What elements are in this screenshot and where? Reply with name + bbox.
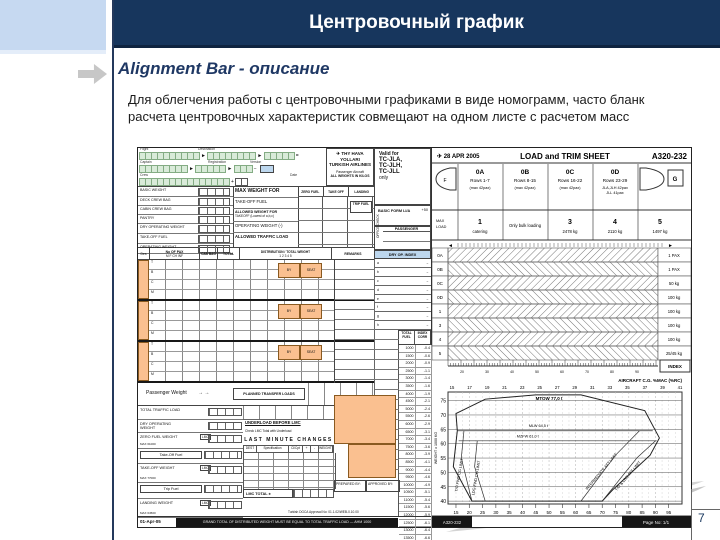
plus-sign: +: [231, 179, 234, 185]
approved-by-box: APPROVED BY:: [366, 480, 400, 492]
svg-text:90: 90: [653, 510, 659, 515]
svg-text:MZFW 61,0 t: MZFW 61,0 t: [517, 434, 540, 438]
limit-columns: ZERO FUEL TAKE OFF LANDING TRIP FUEL: [298, 187, 374, 247]
svg-text:50 kg: 50 kg: [669, 281, 680, 286]
svg-text:LOAD: LOAD: [436, 225, 447, 229]
pax-cab-bag: CAB BAG: [200, 248, 218, 259]
svg-text:40: 40: [520, 510, 526, 515]
svg-text:41: 41: [678, 385, 683, 390]
svg-text:0D: 0D: [611, 169, 620, 176]
svg-text:MTOW 77,0 t: MTOW 77,0 t: [536, 396, 563, 401]
weight-row-label: BASIC WEIGHT: [140, 188, 166, 192]
flight-fields-row3: +: [140, 178, 248, 186]
totals-rows: TOTAL TRAFFIC LOADDRY OPERATING WEIGHTZE…: [138, 406, 243, 511]
svg-text:JLL 41pax: JLL 41pax: [606, 191, 623, 195]
field-label-date: Date: [290, 174, 297, 177]
svg-text:5: 5: [658, 219, 662, 226]
title-bar: Центровочный график: [113, 0, 720, 48]
basic-form-box: BASIC FORM LI/A +50: [374, 205, 431, 226]
destination-cell: [138, 260, 149, 299]
corner-decoration: [0, 0, 106, 54]
svg-text:25: 25: [537, 385, 542, 390]
alignment-bar: [448, 304, 658, 318]
lmc-total-label: LMC TOTAL ±: [243, 489, 293, 498]
svg-text:95: 95: [666, 510, 672, 515]
svg-text:100 kg: 100 kg: [668, 337, 681, 342]
operating-weight-row: OPERATING WEIGHT (-): [233, 222, 298, 233]
svg-text:35: 35: [507, 510, 513, 515]
underload-label: UNDERLOAD BEFORE LMC: [245, 420, 301, 425]
svg-text:70: 70: [600, 510, 606, 515]
svg-text:JLA,JLH 42pax: JLA,JLH 42pax: [602, 186, 628, 190]
svg-text:27: 27: [555, 385, 560, 390]
svg-text:3: 3: [568, 219, 572, 226]
allowed-traffic-row: ALLOWED TRAFFIC LOAD: [233, 233, 298, 244]
svg-text:A320-232: A320-232: [443, 520, 462, 525]
arrow-icon: ►: [189, 166, 194, 172]
svg-text:G: G: [673, 177, 678, 183]
svg-text:31: 31: [590, 385, 595, 390]
svg-text:80: 80: [626, 510, 632, 515]
alignment-bar: [448, 346, 658, 360]
airline-name-1: THY HAVA YOLLARI: [340, 151, 364, 162]
svg-text:Rows 16-22: Rows 16-22: [558, 178, 583, 183]
svg-text:29: 29: [572, 385, 577, 390]
validity-box: Valid for TC-JLA, TC-JLH, TC-JLL only: [374, 148, 431, 205]
svg-text:catering: catering: [473, 229, 489, 234]
svg-text:100 kg: 100 kg: [668, 295, 681, 300]
svg-text:50: 50: [535, 370, 539, 374]
field-label-registration: Registration: [208, 161, 226, 164]
svg-text:0A: 0A: [476, 169, 485, 176]
col-landing: LANDING: [349, 187, 374, 196]
orange-block-1: [334, 395, 396, 444]
svg-text:(max 42pax): (max 42pax): [559, 186, 581, 190]
svg-text:40: 40: [510, 370, 514, 374]
svg-text:1 PAX: 1 PAX: [668, 253, 680, 258]
svg-text:70: 70: [440, 413, 446, 419]
svg-text:Rows 8-15: Rows 8-15: [514, 178, 536, 183]
basic-form-value: +50: [422, 208, 428, 212]
corner-line-vertical: [691, 489, 692, 540]
takeoff-fuel-row: TAKE-OFF FUEL: [233, 198, 298, 209]
destination-cell: [138, 342, 149, 381]
corner-line-horizontal: [691, 509, 720, 510]
bullet-arrow-icon: [78, 64, 107, 84]
field-label-crew: Crew: [140, 174, 148, 177]
col-take-off: TAKE OFF: [324, 187, 350, 196]
fuel-rows: 1000-0.41500-0.62000-0.92500-1.13000-1.4…: [398, 345, 432, 517]
svg-text:20: 20: [460, 370, 464, 374]
svg-text:50: 50: [440, 470, 446, 476]
svg-text:21: 21: [502, 385, 507, 390]
svg-text:37: 37: [643, 385, 648, 390]
body-line-2: расчета центровочных характеристик совме…: [128, 109, 629, 124]
slide-title: Центровочный график: [113, 0, 720, 45]
svg-text:60: 60: [573, 510, 579, 515]
col-zero-fuel: ZERO FUEL: [298, 187, 324, 196]
svg-text:33: 33: [608, 385, 613, 390]
svg-text:90: 90: [635, 370, 639, 374]
svg-text:0D: 0D: [437, 295, 444, 300]
svg-text:60: 60: [440, 442, 446, 448]
svg-text:39: 39: [660, 385, 665, 390]
alignment-bar: [448, 290, 658, 304]
footer-strip-text: GRAND TOTAL OF DISTRIBUTED WEIGHT MUST B…: [176, 518, 398, 527]
svg-text:0C: 0C: [566, 169, 575, 176]
pax-total: TOTAL: [218, 248, 240, 259]
svg-text:15: 15: [450, 385, 455, 390]
svg-text:23: 23: [520, 385, 525, 390]
svg-text:(max 42pax): (max 42pax): [469, 186, 491, 190]
index-transfer-rows: a→b→c→d→e→f→g→h→: [374, 259, 431, 330]
arrow-icon: ►: [257, 153, 262, 159]
svg-text:70: 70: [585, 370, 589, 374]
left-footer: 01-Apr-05 GRAND TOTAL OF DISTRIBUTED WEI…: [138, 516, 431, 527]
section-heading: Alignment Bar - описание: [118, 59, 329, 79]
svg-text:0B: 0B: [521, 169, 530, 176]
svg-text:LDG FWD CG LIMIT: LDG FWD CG LIMIT: [471, 460, 481, 496]
svg-text:2110 kg: 2110 kg: [608, 229, 623, 234]
office-check-box: OFFICE CHECK PASSENGER: [374, 226, 431, 250]
svg-text:AIRCRAFT C.G. %MAC (%RC): AIRCRAFT C.G. %MAC (%RC): [618, 378, 682, 383]
plane-icon: ✈: [336, 151, 340, 156]
svg-text:A320-232: A320-232: [652, 152, 688, 161]
alignment-bar: [448, 276, 658, 290]
weight-row-label: PANTRY: [140, 216, 154, 220]
pax-des: Des: [138, 248, 150, 259]
svg-text:0A: 0A: [437, 253, 443, 258]
svg-text:F: F: [443, 178, 446, 184]
transfer-loads-box: PLANNED TRANSFER LOADS: [233, 388, 305, 400]
left-border-line: [112, 0, 114, 540]
grid-strip: [243, 406, 334, 420]
svg-text:Only bulk loading: Only bulk loading: [509, 223, 542, 228]
svg-text:Page No: 1/1: Page No: 1/1: [643, 520, 670, 525]
svg-text:40: 40: [440, 499, 446, 505]
max-weight-block: MAX WEIGHT FOR TAKE-OFF FUEL ALLOWED WEI…: [233, 187, 299, 247]
svg-text:55: 55: [560, 510, 566, 515]
fuel-table-header: TOTAL FUEL INDEX CORR: [398, 330, 431, 345]
svg-text:LOAD and TRIM SHEET: LOAD and TRIM SHEET: [520, 152, 610, 161]
svg-text:15: 15: [453, 510, 459, 515]
by-seat-box: BYSEAT: [278, 263, 322, 278]
alignment-bar: [448, 318, 658, 332]
arrow-icon: → →: [198, 390, 209, 396]
svg-text:60: 60: [560, 370, 564, 374]
airline-sub-2: ALL WEIGHTS IN KILOS: [327, 174, 373, 178]
svg-text:20: 20: [467, 510, 473, 515]
svg-text:MAX: MAX: [436, 219, 445, 223]
lmc-total-cells: [293, 489, 334, 498]
svg-text:(max 42pax): (max 42pax): [514, 186, 536, 190]
svg-text:50: 50: [547, 510, 553, 515]
equals-sign: =: [296, 153, 299, 159]
svg-text:MLW 64,5 t: MLW 64,5 t: [529, 424, 549, 428]
lmc-header: DESTSpecificationCl/Cpt+-WEIGHT: [243, 445, 334, 453]
remarks-column: [334, 260, 375, 383]
svg-text:4: 4: [613, 219, 617, 226]
svg-text:WEIGHT x 1000 KG: WEIGHT x 1000 KG: [434, 432, 438, 464]
body-line-1: Для облегчения работы с центровочными гр…: [128, 92, 644, 107]
svg-text:100 kg: 100 kg: [668, 323, 681, 328]
svg-text:65: 65: [586, 510, 592, 515]
page-number: 7: [698, 511, 705, 525]
index-entry-box: [260, 165, 274, 173]
alignment-bar: [448, 262, 658, 276]
airline-name-2: TURKISH AIRLINES: [327, 162, 373, 167]
svg-text:1: 1: [478, 219, 482, 226]
svg-text:75: 75: [440, 399, 446, 405]
body-paragraph: Для облегчения работы с центровочными гр…: [128, 91, 713, 125]
svg-text:0B: 0B: [437, 267, 443, 272]
weight-row-label: DECK CREW BAG: [140, 198, 171, 202]
svg-text:1 PAX: 1 PAX: [668, 267, 680, 272]
fuel-col-1: TOTAL FUEL: [399, 331, 415, 344]
allowed-weight-row-2: TAKEOFF (Lowest of a,b,c): [235, 214, 297, 218]
field-label-destination: Destination: [198, 148, 215, 151]
underload-note: Check LMC Total with Underload: [245, 429, 291, 433]
arrow-icon: ►: [201, 153, 206, 159]
weight-row-label: CABIN CREW BAG: [140, 207, 172, 211]
pax-header-row: Des No OF PAX M F CH INF CAB BAG TOTAL D…: [138, 248, 374, 260]
weight-rows: BASIC WEIGHTDECK CREW BAGCABIN CREW BAGP…: [138, 187, 234, 247]
loadsheet-left: Flight Destination ► ► = Captain Registr…: [138, 148, 432, 527]
svg-text:17: 17: [467, 385, 472, 390]
alignment-bar: [448, 248, 658, 262]
svg-text:35: 35: [625, 385, 630, 390]
office-check-label: OFFICE CHECK: [376, 214, 380, 238]
by-seat-box: BYSEAT: [278, 304, 322, 319]
pax-dist-cols: 1 2 3 4 5: [240, 254, 331, 258]
max-weight-title: MAX WEIGHT FOR: [233, 187, 298, 198]
pax-sub-cols: M F CH INF: [150, 254, 199, 258]
weight-calc-block: BASIC WEIGHTDECK CREW BAGCABIN CREW BAGP…: [138, 186, 374, 248]
svg-text:25/45 kg: 25/45 kg: [666, 351, 683, 356]
prepared-by-box: PREPARED BY:: [334, 480, 366, 492]
svg-text:45: 45: [440, 485, 446, 491]
svg-text:30: 30: [493, 510, 499, 515]
svg-text:25: 25: [480, 510, 486, 515]
field-label-flight: Flight: [140, 148, 148, 151]
flight-fields-row1: ► ► =: [140, 152, 300, 160]
valid-only: only: [379, 175, 430, 181]
basic-form-label: BASIC FORM LI/A: [378, 209, 410, 213]
svg-text:INDEX: INDEX: [668, 364, 682, 369]
svg-text:2478 kg: 2478 kg: [563, 229, 579, 234]
svg-text:✈ 28 APR 2005: ✈ 28 APR 2005: [437, 153, 480, 160]
footer-date: 01-Apr-05: [140, 519, 161, 524]
office-check-grid: [383, 232, 430, 248]
svg-text:55: 55: [440, 456, 446, 462]
slide: Центровочный график Alignment Bar - опис…: [0, 0, 720, 540]
arrow-icon: ►: [227, 166, 232, 172]
trip-fuel-box: TRIP FUEL: [350, 201, 372, 213]
flight-fields-row2: ► ► −: [140, 165, 274, 173]
destination-cell: [138, 301, 149, 340]
svg-text:45: 45: [533, 510, 539, 515]
load-and-trim-sheet: Flight Destination ► ► = Captain Registr…: [137, 147, 692, 528]
trimsheet-right: ✈ 28 APR 2005LOAD and TRIM SHEETA320-232…: [432, 148, 691, 527]
svg-text:65: 65: [440, 427, 446, 433]
svg-text:100 kg: 100 kg: [668, 309, 681, 314]
passenger-weight-label: Passenger Weight: [146, 390, 187, 396]
svg-text:80: 80: [610, 370, 614, 374]
lmc-grid: [243, 453, 336, 489]
minus-sign: −: [254, 166, 257, 172]
airline-block: ✈ THY HAVA YOLLARI TURKISH AIRLINES Pass…: [326, 148, 374, 186]
by-seat-box: BYSEAT: [278, 345, 322, 360]
svg-text:75: 75: [613, 510, 619, 515]
svg-text:30: 30: [485, 370, 489, 374]
svg-text:19: 19: [485, 385, 490, 390]
svg-text:0C: 0C: [437, 281, 444, 286]
fuel-col-2: INDEX CORR: [415, 331, 430, 344]
field-label-version: Version: [250, 161, 261, 164]
trim-chart-svg: ✈ 28 APR 2005LOAD and TRIM SHEETA320-232…: [432, 148, 691, 527]
svg-text:Rows 1-7: Rows 1-7: [470, 178, 490, 183]
pax-remarks: REMARKS: [332, 248, 374, 259]
orange-block-2: [348, 444, 396, 478]
svg-text:85: 85: [640, 510, 646, 515]
weight-row-label: TAKE-OFF FUEL: [140, 235, 168, 239]
field-label-captain: Captain: [140, 161, 152, 164]
weight-row-label: DRY OPERATING WEIGHT: [140, 225, 185, 229]
svg-text:Rows 23-29: Rows 23-29: [603, 178, 628, 183]
svg-text:1497 kg: 1497 kg: [653, 229, 669, 234]
approval-note: Turkish DGCA Approval No: 01.1.02/WEB-0.…: [288, 510, 431, 514]
last-minute-title: LAST MINUTE CHANGES: [243, 437, 334, 443]
alignment-bar: [448, 332, 658, 346]
dry-op-index-cell: DRY OP. INDEX: [374, 250, 431, 259]
